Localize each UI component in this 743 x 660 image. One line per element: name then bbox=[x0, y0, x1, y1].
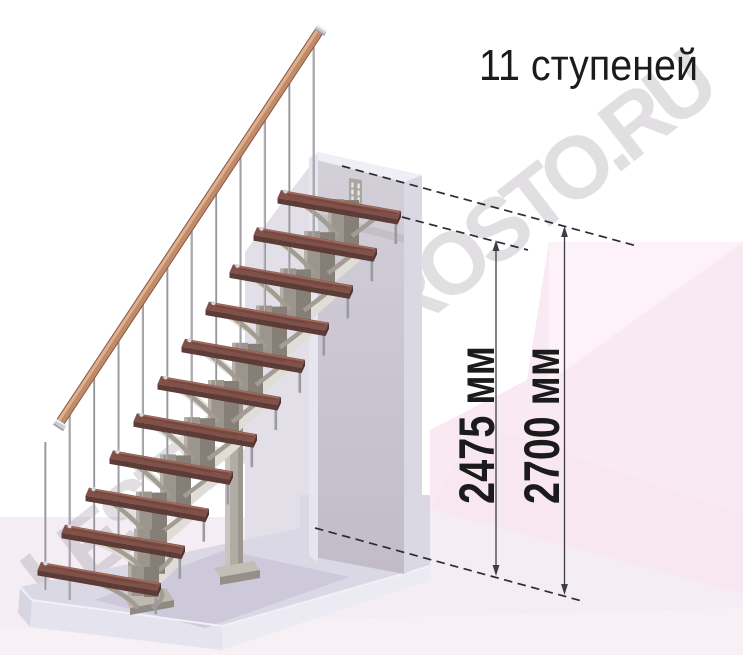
svg-text:11 ступеней: 11 ступеней bbox=[479, 41, 698, 90]
svg-text:2475 мм: 2475 мм bbox=[449, 346, 505, 504]
svg-text:2700 мм: 2700 мм bbox=[514, 347, 570, 504]
